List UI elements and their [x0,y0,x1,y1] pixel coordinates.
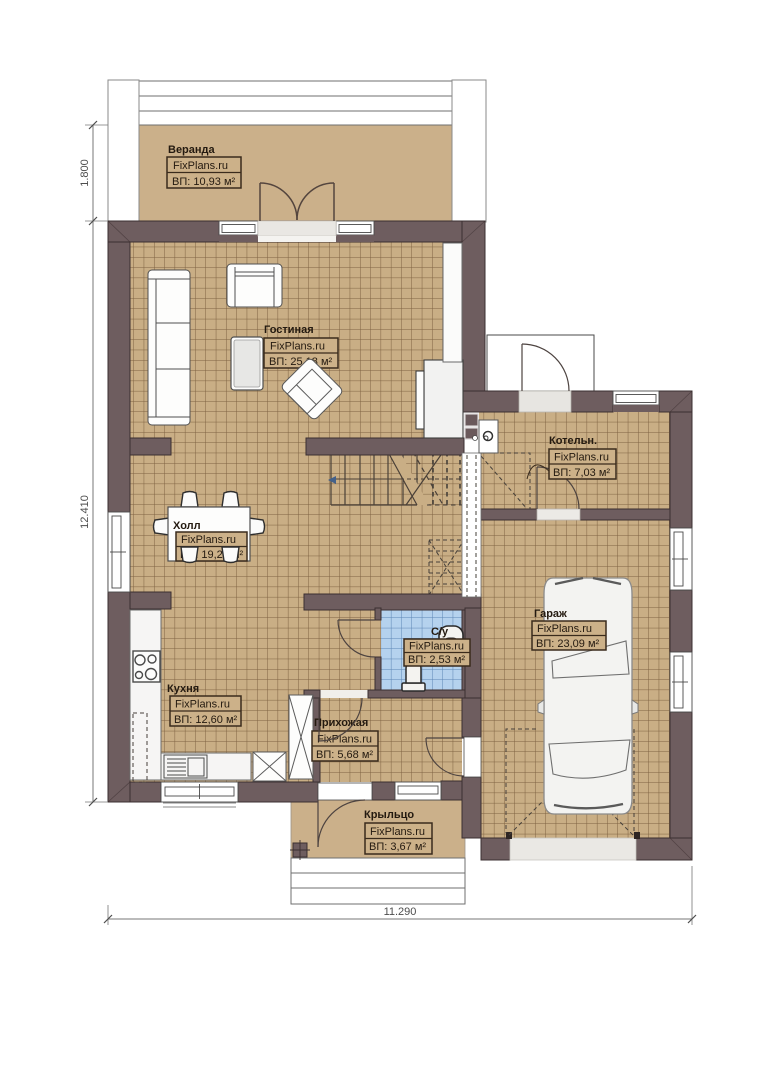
svg-text:FixPlans.ru: FixPlans.ru [370,826,425,838]
svg-text:ВП: 2,53 м²: ВП: 2,53 м² [408,654,465,666]
svg-text:11.290: 11.290 [384,906,417,918]
svg-text:FixPlans.ru: FixPlans.ru [537,623,592,635]
svg-text:Гараж: Гараж [534,608,567,620]
svg-text:Гостиная: Гостиная [264,324,314,336]
svg-text:FixPlans.ru: FixPlans.ru [181,534,236,546]
svg-text:ВП: 5,68 м²: ВП: 5,68 м² [316,749,373,761]
svg-text:FixPlans.ru: FixPlans.ru [554,452,609,464]
svg-text:FixPlans.ru: FixPlans.ru [173,160,228,172]
svg-text:Крыльцо: Крыльцо [364,809,414,821]
svg-text:ВП: 7,03 м²: ВП: 7,03 м² [553,467,610,479]
svg-text:Котельн.: Котельн. [549,435,597,447]
svg-text:Кухня: Кухня [167,683,199,695]
svg-text:ВП: 12,60 м²: ВП: 12,60 м² [174,714,238,726]
svg-text:ВП: 10,93 м²: ВП: 10,93 м² [172,176,236,188]
svg-text:FixPlans.ru: FixPlans.ru [317,734,372,746]
svg-text:Веранда: Веранда [168,144,216,156]
svg-text:FixPlans.ru: FixPlans.ru [175,699,230,711]
svg-text:1.800: 1.800 [79,159,91,187]
svg-text:Холл: Холл [173,520,201,532]
svg-text:FixPlans.ru: FixPlans.ru [409,641,464,653]
svg-text:С/у: С/у [431,626,449,638]
svg-text:ВП: 23,09 м²: ВП: 23,09 м² [536,638,600,650]
svg-text:Прихожая: Прихожая [314,717,368,729]
svg-text:12.410: 12.410 [79,495,91,529]
svg-text:ВП: 3,67 м²: ВП: 3,67 м² [369,841,426,853]
svg-text:FixPlans.ru: FixPlans.ru [270,341,325,353]
